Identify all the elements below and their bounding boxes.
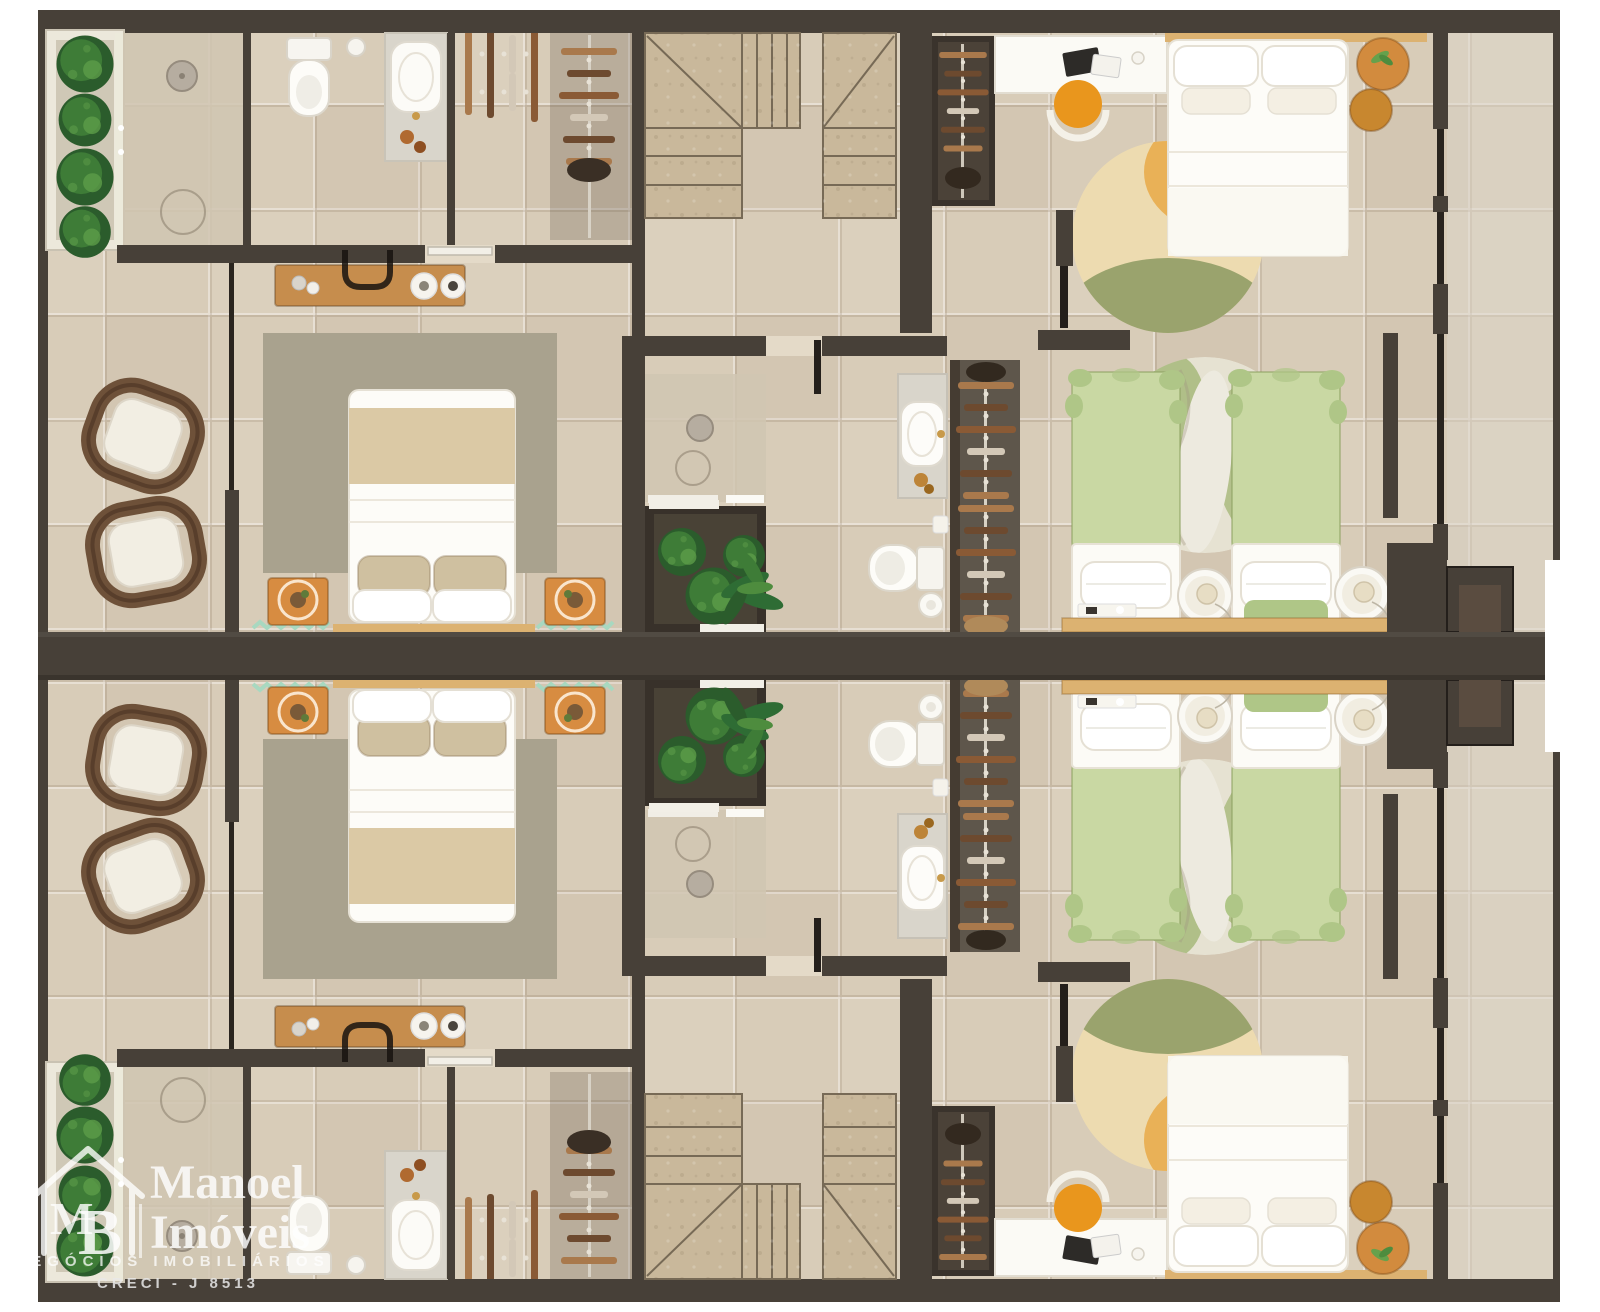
sink-counter-icon bbox=[385, 33, 447, 161]
headboard-shelf bbox=[1062, 618, 1425, 632]
pillow bbox=[433, 590, 511, 622]
pillow bbox=[1262, 46, 1346, 86]
shower-head-icon bbox=[687, 415, 713, 441]
planter-box-inner bbox=[645, 500, 785, 632]
wall-stub bbox=[1056, 210, 1073, 266]
door-leaf bbox=[428, 247, 492, 255]
outer-wall-top bbox=[38, 10, 1560, 33]
planter-balcony-left bbox=[46, 30, 124, 258]
vase-icon bbox=[347, 38, 365, 56]
wall bbox=[632, 10, 645, 336]
closet-front-bedroom bbox=[932, 36, 995, 206]
double-bed-front bbox=[1168, 40, 1348, 256]
outer-glass-right bbox=[1553, 33, 1560, 560]
headboard-shelf bbox=[333, 624, 535, 632]
shower-shared bbox=[645, 374, 766, 503]
shower-glass bbox=[115, 33, 123, 245]
brand-name-line1: Manoel bbox=[150, 1156, 305, 1209]
logo-divider bbox=[139, 1204, 142, 1258]
shower-master bbox=[115, 33, 243, 245]
nightstand-icon bbox=[545, 578, 605, 625]
wall bbox=[243, 33, 251, 245]
service-box bbox=[1427, 560, 1600, 632]
brand-tagline: NEGÓCIOS IMOBILIÁRIOS bbox=[14, 1252, 329, 1270]
balcony-glass-frame bbox=[225, 490, 239, 632]
nightstand-icon bbox=[268, 578, 328, 625]
floorplan-render: M B Manoel Imóveis NEGÓCIOS IMOBILIÁRIOS… bbox=[0, 0, 1600, 1312]
brand-license: CRECI - J 8513 bbox=[97, 1275, 259, 1292]
door-leaf bbox=[1060, 266, 1068, 328]
central-divider-wall bbox=[38, 632, 1545, 680]
toilet-icon bbox=[287, 38, 331, 116]
double-bed-master bbox=[349, 390, 515, 622]
cup-icon bbox=[1132, 52, 1144, 64]
door-leaf bbox=[814, 340, 821, 394]
balcony-right-floor bbox=[1447, 33, 1553, 632]
pillow bbox=[353, 590, 431, 622]
balcony-glass bbox=[229, 263, 234, 490]
closet-shared bbox=[950, 360, 1020, 636]
wall bbox=[1383, 333, 1398, 518]
pillow bbox=[1174, 46, 1258, 86]
party-wall-stair bbox=[900, 10, 932, 333]
brand-name-line2: Imóveis bbox=[150, 1206, 310, 1259]
unit-upper-floor bbox=[38, 10, 1600, 636]
